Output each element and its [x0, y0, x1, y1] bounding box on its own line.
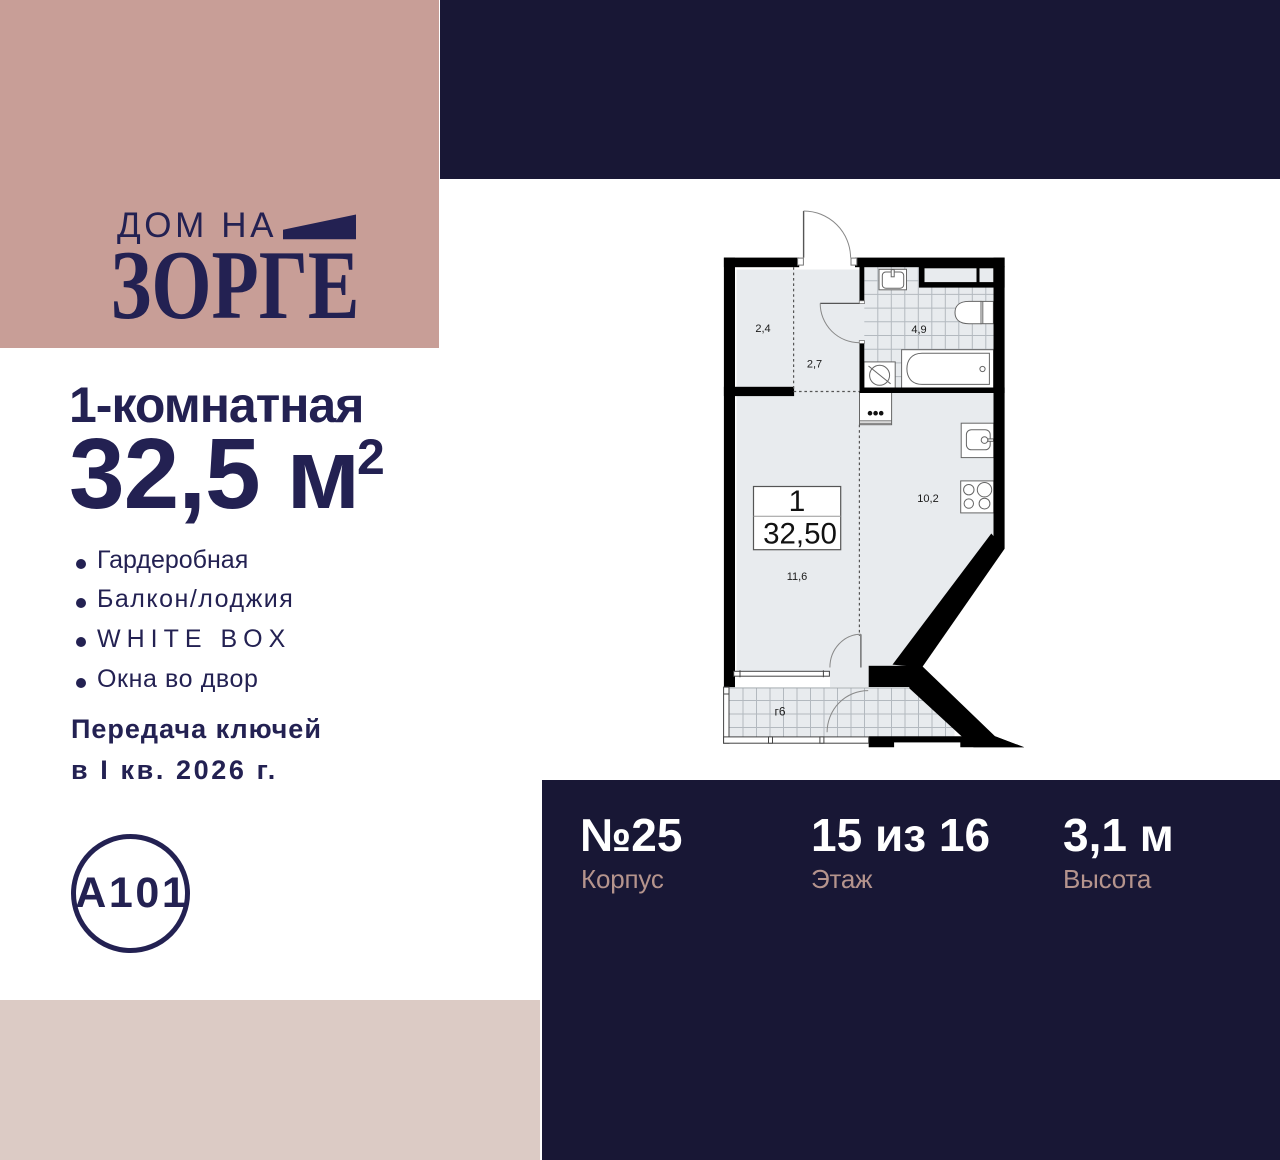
svg-text:2,4: 2,4 — [755, 323, 770, 335]
svg-text:г6: г6 — [774, 705, 785, 719]
svg-text:1: 1 — [789, 485, 806, 518]
svg-text:10,2: 10,2 — [917, 493, 938, 505]
svg-text:32,50: 32,50 — [763, 518, 837, 551]
svg-text:4,9: 4,9 — [911, 324, 926, 336]
svg-text:2,7: 2,7 — [807, 359, 822, 371]
svg-text:11,6: 11,6 — [787, 571, 808, 583]
